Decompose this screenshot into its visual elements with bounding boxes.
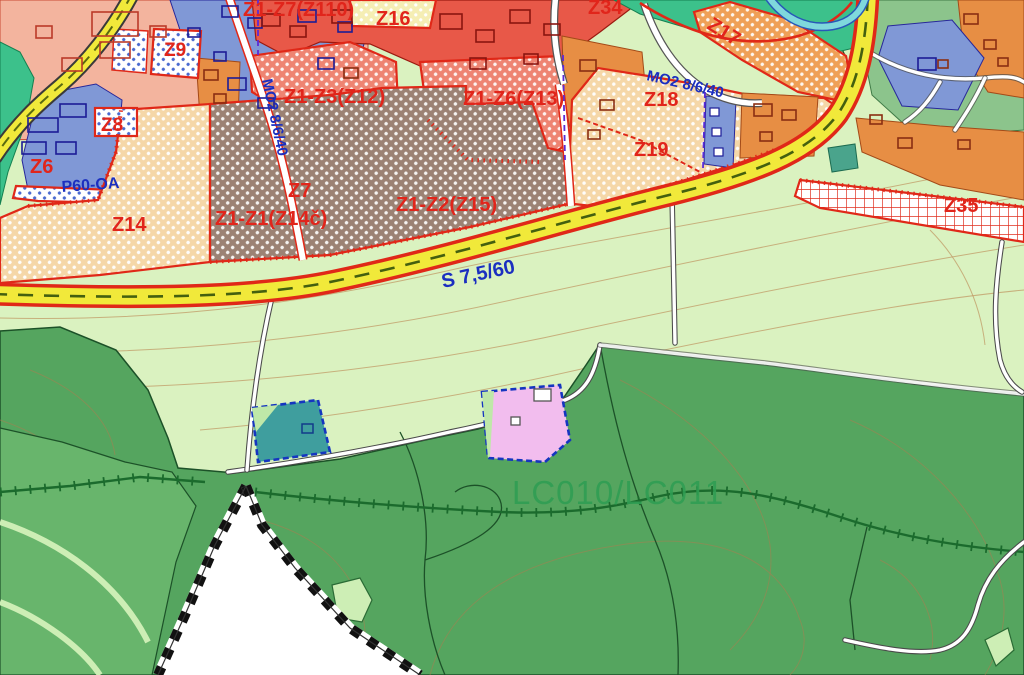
- zoning-map[interactable]: Z1-Z7(Z110) Z16 Z34 Z17 Z1-Z3(Z12) Z1-Z6…: [0, 0, 1024, 675]
- label-zone-z12: Z1-Z3(Z12): [284, 86, 385, 108]
- label-zone-z9: Z9: [164, 40, 186, 61]
- teal-parcel: [252, 400, 330, 462]
- label-lc010-lc011: LC010/LC011: [512, 474, 724, 511]
- label-zone-z16: Z16: [376, 8, 410, 30]
- pink-parcel: [482, 385, 570, 462]
- label-zone-z34: Z34: [588, 0, 623, 19]
- label-zone-z14: Z14: [112, 214, 147, 236]
- map-canvas[interactable]: Z1-Z7(Z110) Z16 Z34 Z17 Z1-Z3(Z12) Z1-Z6…: [0, 0, 1024, 675]
- label-zone-z18: Z18: [644, 89, 678, 111]
- label-zone-z7: Z7: [288, 180, 311, 202]
- label-zone-z8: Z8: [101, 115, 123, 136]
- label-zone-z15: Z1-Z2(Z15): [396, 194, 497, 216]
- label-zone-z35: Z35: [944, 195, 978, 217]
- label-zone-z13: Z1-Z6(Z13): [463, 88, 564, 110]
- label-zone-z110: Z1-Z7(Z110): [243, 0, 354, 21]
- label-zone-z14c: Z1-Z1(Z14č): [215, 208, 327, 230]
- label-zone-z6: Z6: [30, 156, 53, 178]
- label-zone-z19: Z19: [634, 139, 668, 161]
